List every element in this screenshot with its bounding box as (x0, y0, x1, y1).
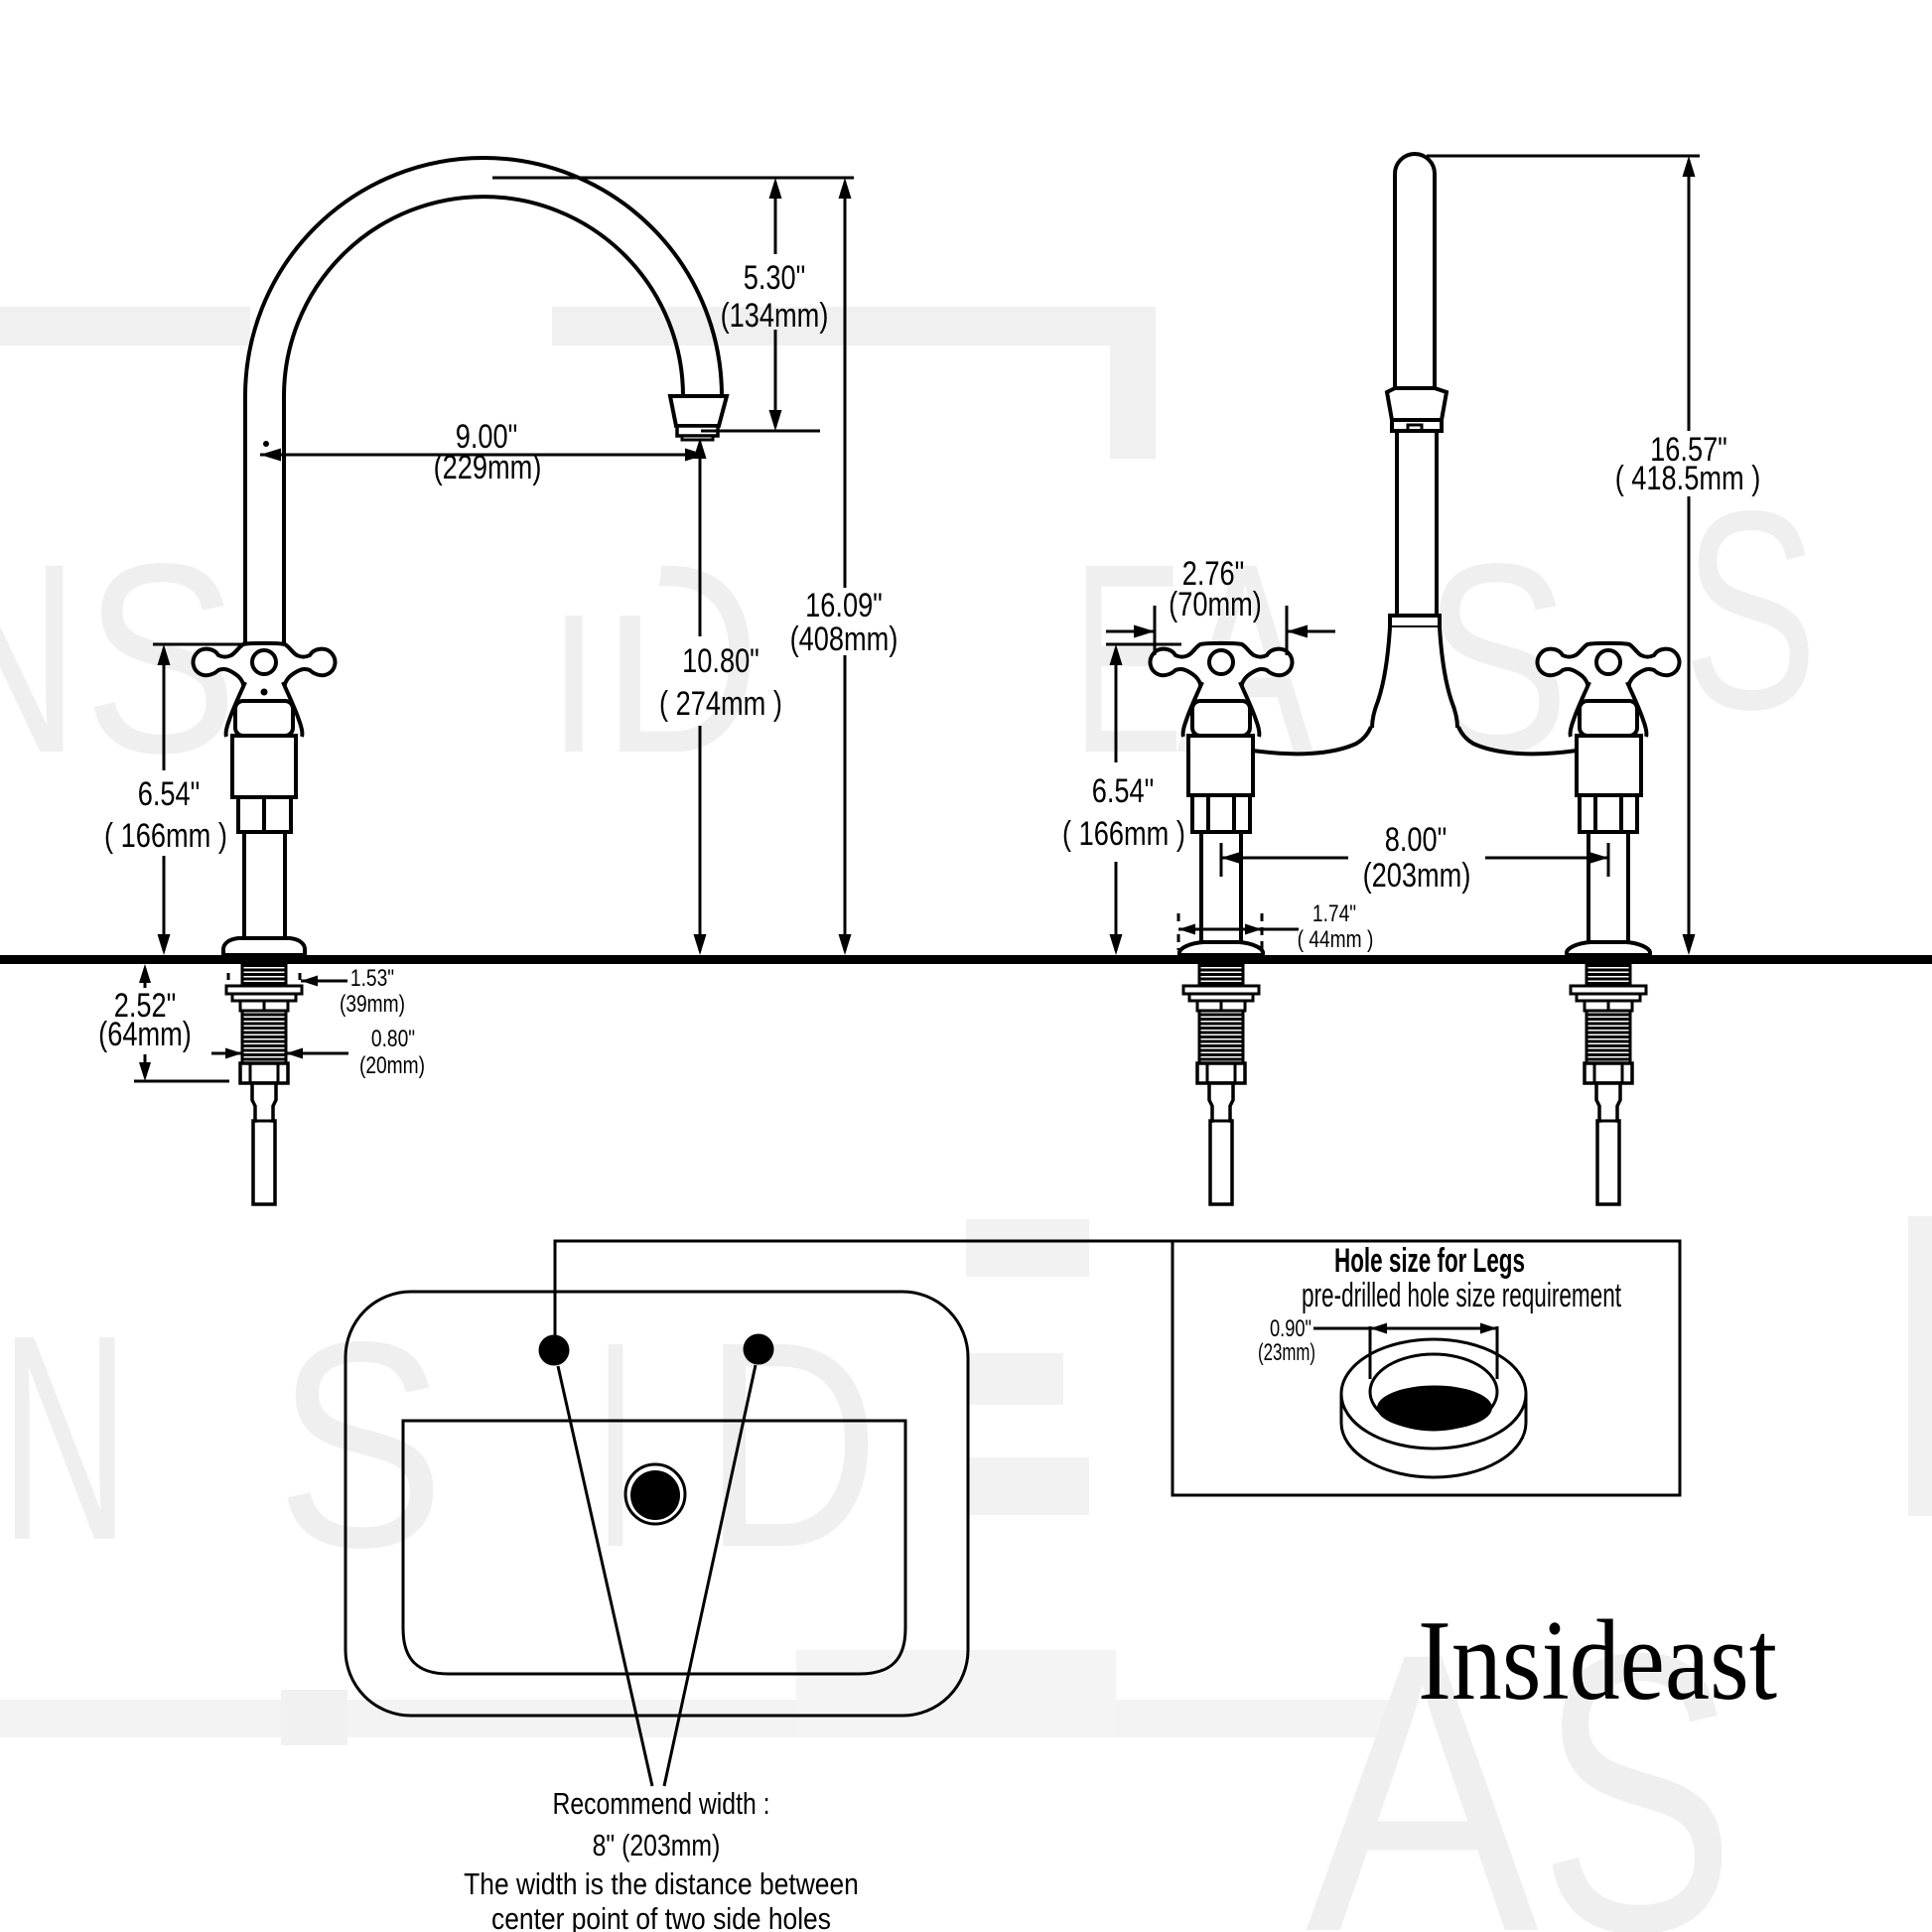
svg-text:5.30": 5.30" (744, 259, 806, 297)
svg-text:Recommend width :: Recommend width : (552, 1786, 769, 1821)
svg-text:( 418.5mm ): ( 418.5mm ) (1615, 460, 1761, 497)
svg-text:(23mm): (23mm) (1258, 1339, 1315, 1366)
svg-text:D: D (703, 1281, 880, 1608)
svg-text:( 166mm ): ( 166mm ) (104, 817, 227, 855)
svg-text:(70mm): (70mm) (1169, 586, 1262, 623)
svg-text:(408mm): (408mm) (790, 621, 898, 658)
svg-text:N: N (0, 1274, 129, 1601)
svg-text:The width is the distance betw: The width is the distance between (464, 1866, 859, 1901)
svg-text:Hole size for Legs: Hole size for Legs (1334, 1242, 1525, 1280)
svg-text:1.74": 1.74" (1312, 900, 1356, 927)
svg-text:(229mm): (229mm) (434, 449, 542, 486)
svg-text:16.09": 16.09" (805, 587, 883, 624)
svg-text:Insideast: Insideast (1418, 1597, 1777, 1724)
svg-text:0.80": 0.80" (371, 1026, 415, 1052)
svg-text:(203mm): (203mm) (1363, 857, 1471, 895)
svg-text:8.00": 8.00" (1385, 821, 1448, 859)
svg-text:center point of two side holes: center point of two side holes (491, 1901, 831, 1932)
svg-text:(39mm): (39mm) (340, 991, 405, 1018)
svg-text:8" (203mm): 8" (203mm) (593, 1828, 721, 1863)
svg-text:( 44mm ): ( 44mm ) (1298, 926, 1374, 953)
svg-text:( 274mm ): ( 274mm ) (659, 685, 782, 723)
svg-text:N: N (0, 507, 79, 809)
svg-text:0.90": 0.90" (1270, 1315, 1311, 1342)
svg-text:10.80": 10.80" (682, 642, 759, 680)
svg-text:S: S (276, 1281, 445, 1608)
svg-text:pre-drilled hole size requirem: pre-drilled hole size requirement (1302, 1277, 1621, 1314)
svg-text:S: S (1683, 453, 1818, 768)
svg-text:6.54": 6.54" (1092, 772, 1155, 810)
svg-text:(134mm): (134mm) (721, 297, 829, 335)
svg-text:1.53": 1.53" (350, 965, 394, 992)
svg-text:(20mm): (20mm) (359, 1052, 425, 1079)
svg-text:6.54": 6.54" (138, 775, 201, 813)
svg-text:(64mm): (64mm) (98, 1016, 192, 1053)
svg-text:( 166mm ): ( 166mm ) (1062, 815, 1185, 853)
